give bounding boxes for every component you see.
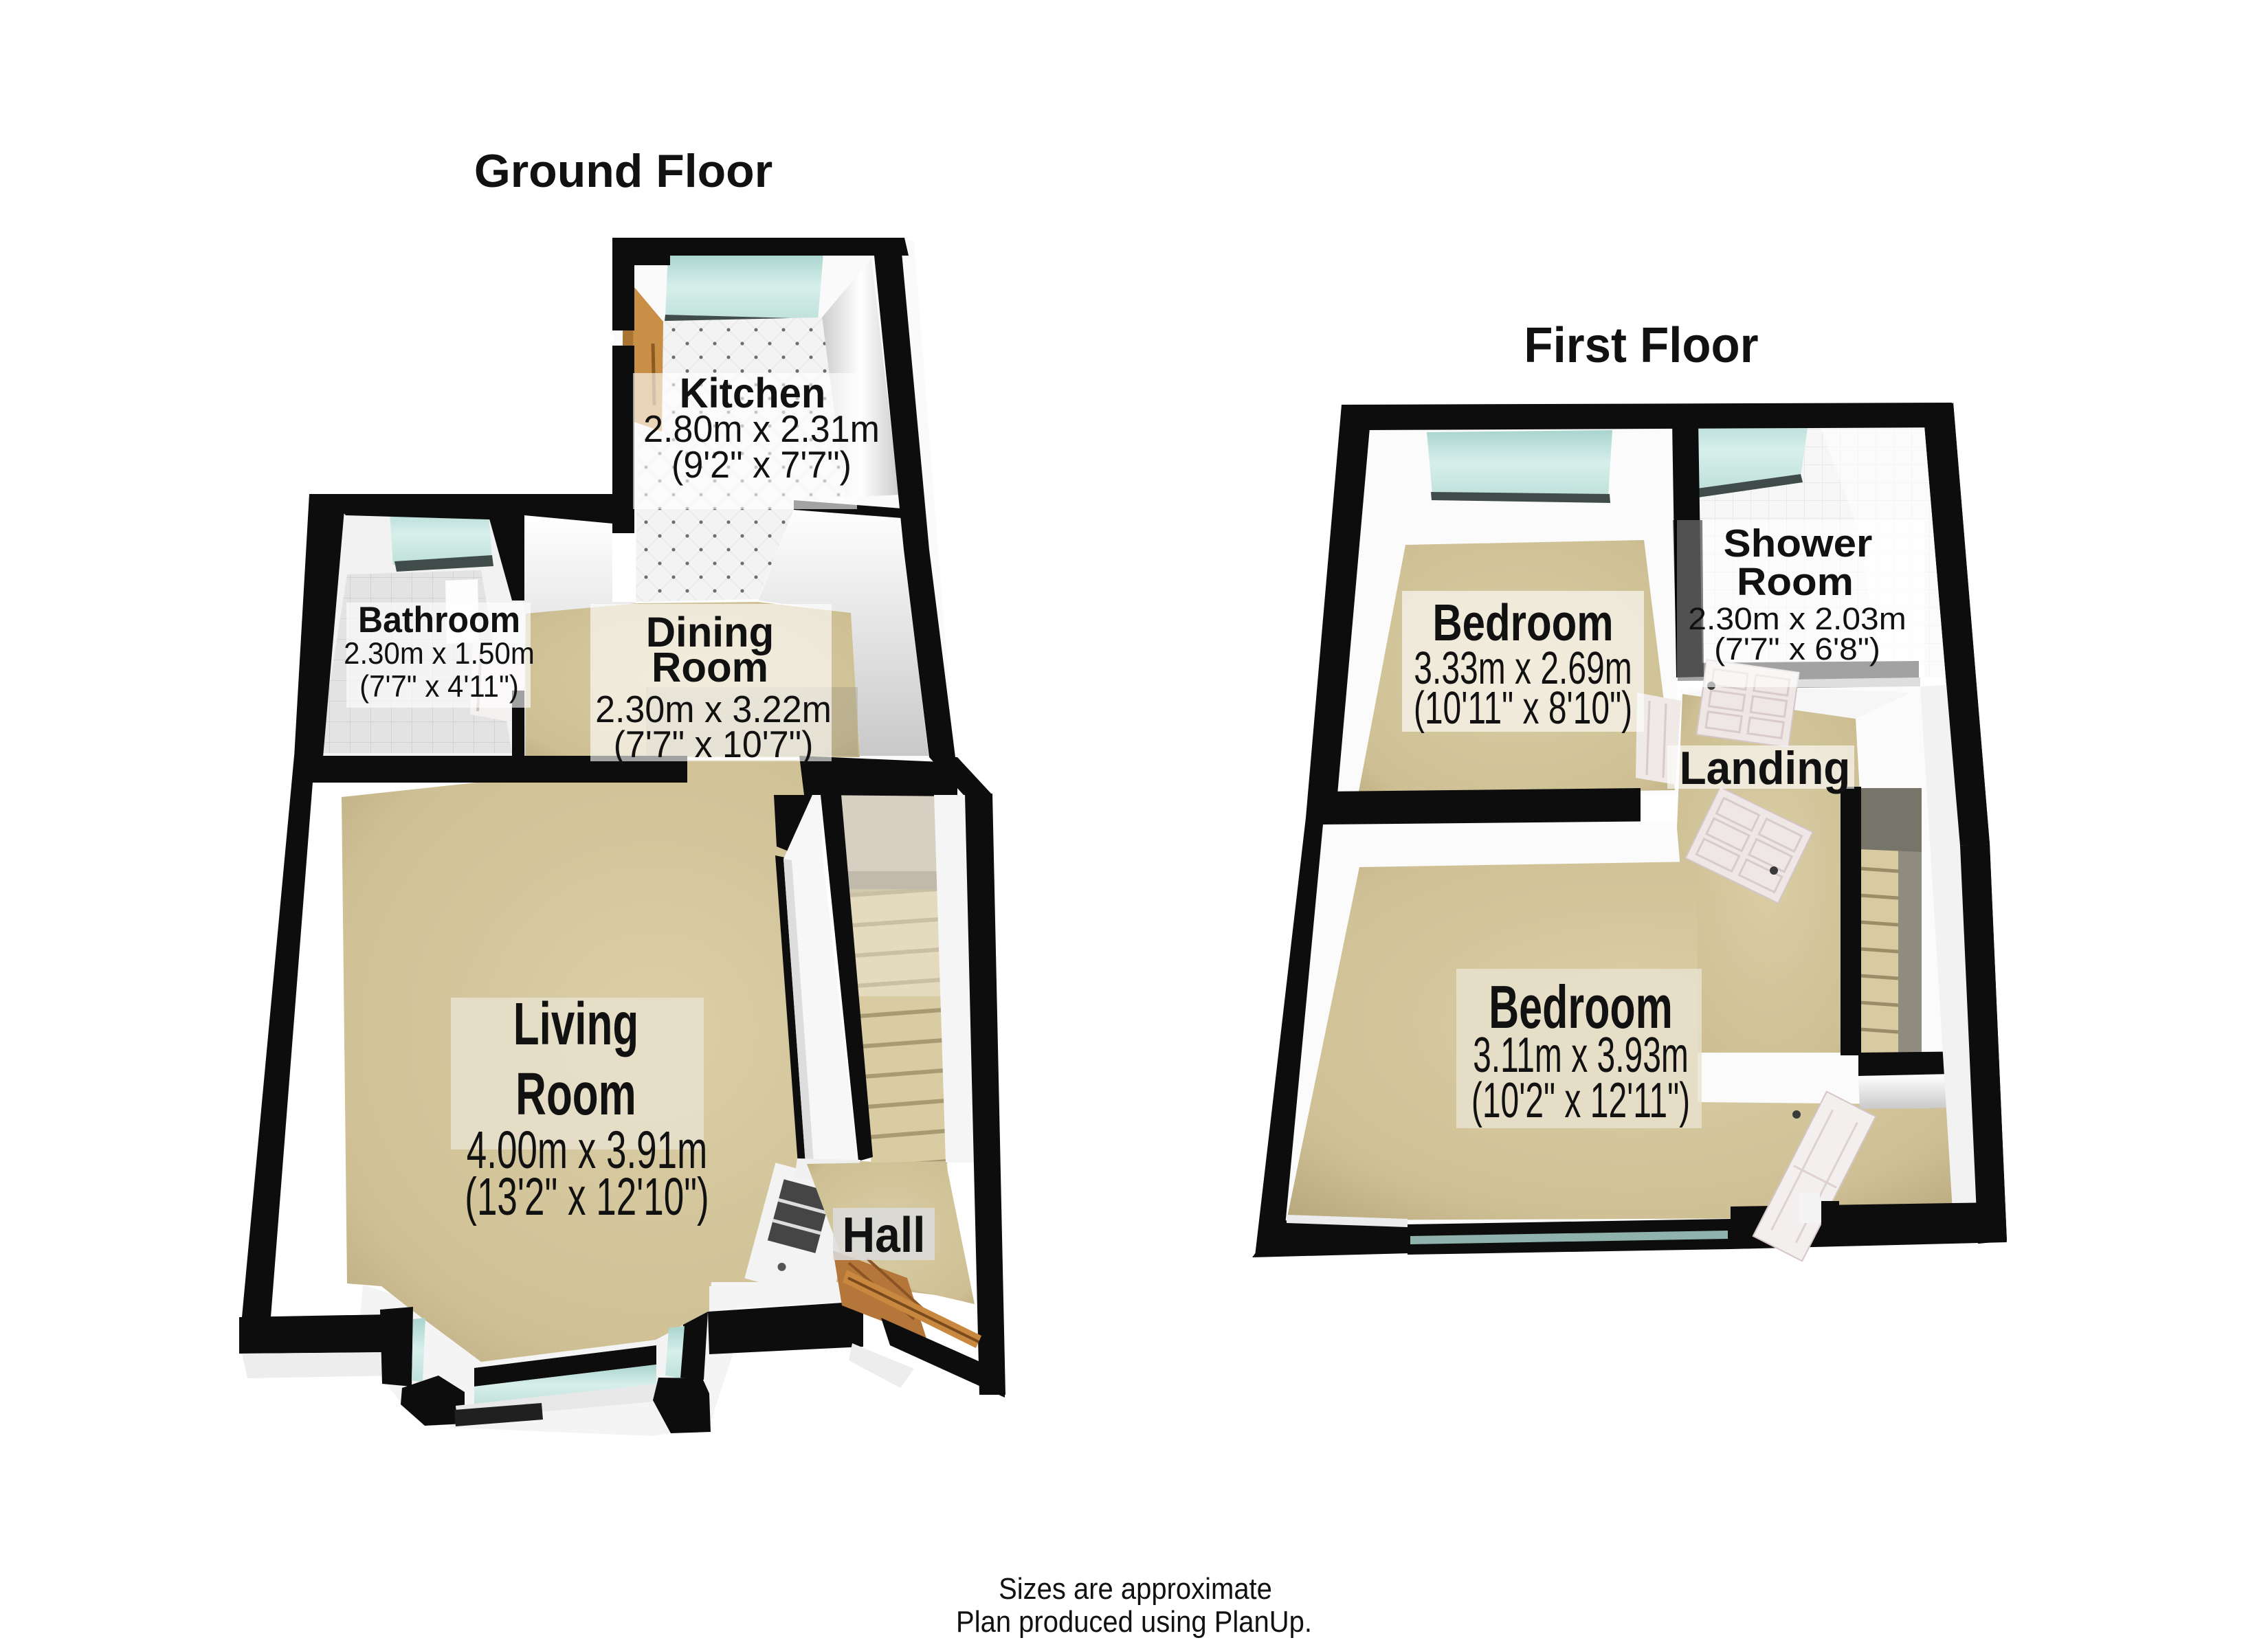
svg-text:(13'2" x 12'10"): (13'2" x 12'10") — [465, 1167, 709, 1226]
svg-text:2.30m x 1.50m: 2.30m x 1.50m — [344, 637, 535, 671]
svg-text:(7'7" x 4'11"): (7'7" x 4'11") — [359, 670, 519, 704]
svg-text:First Floor: First Floor — [1524, 317, 1758, 372]
svg-text:Room: Room — [652, 643, 768, 691]
svg-text:Plan produced using PlanUp.: Plan produced using PlanUp. — [956, 1604, 1312, 1638]
svg-text:Hall: Hall — [842, 1207, 925, 1263]
svg-text:(7'7" x 10'7"): (7'7" x 10'7") — [614, 724, 814, 765]
svg-text:(10'2" x 12'11"): (10'2" x 12'11") — [1471, 1073, 1690, 1128]
svg-text:Sizes are approximate: Sizes are approximate — [999, 1571, 1272, 1605]
svg-text:Room: Room — [1737, 560, 1854, 603]
svg-text:Shower: Shower — [1724, 521, 1873, 565]
svg-text:(9'2" x 7'7"): (9'2" x 7'7") — [671, 445, 852, 486]
svg-text:Landing: Landing — [1680, 741, 1851, 794]
svg-text:Bathroom: Bathroom — [358, 600, 520, 640]
svg-text:Ground Floor: Ground Floor — [474, 145, 772, 197]
svg-text:(10'11" x 8'10"): (10'11" x 8'10") — [1414, 682, 1632, 734]
svg-text:Room: Room — [515, 1061, 636, 1128]
svg-text:Living: Living — [513, 991, 639, 1057]
svg-text:(7'7" x 6'8"): (7'7" x 6'8") — [1714, 631, 1880, 666]
